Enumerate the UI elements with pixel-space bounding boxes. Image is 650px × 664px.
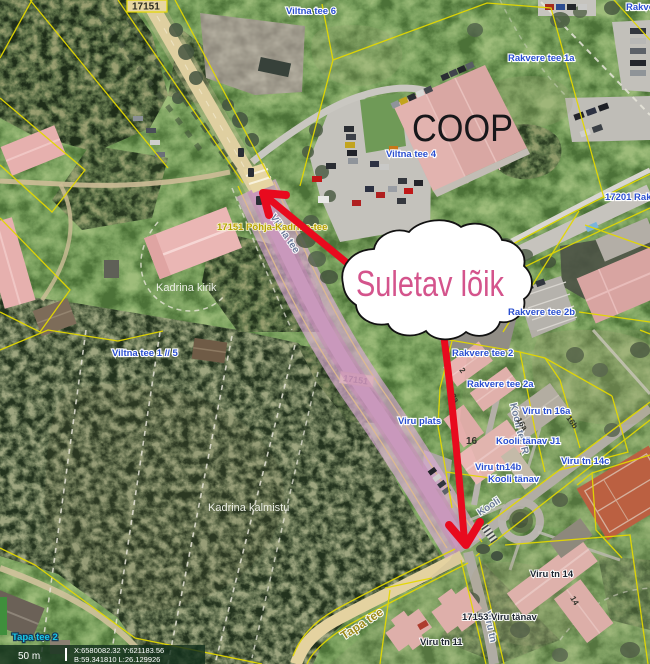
svg-text:17153 Viru tänav: 17153 Viru tänav: [462, 612, 538, 623]
svg-text:COOP: COOP: [412, 108, 513, 150]
svg-text:50 m: 50 m: [18, 651, 40, 662]
svg-text:Viru tn 14: Viru tn 14: [530, 569, 574, 580]
svg-text:Viru tn14b: Viru tn14b: [475, 462, 521, 473]
svg-text:X:6580082.32 Y:621183.56: X:6580082.32 Y:621183.56: [74, 646, 164, 655]
svg-text:Suletav lõik: Suletav lõik: [356, 263, 505, 304]
svg-text:Viltna tee 1 // 5: Viltna tee 1 // 5: [112, 348, 179, 359]
svg-text:17201 Rakv: 17201 Rakv: [605, 192, 650, 203]
svg-text:Kooli tänav J1: Kooli tänav J1: [496, 436, 561, 447]
svg-text:17151: 17151: [132, 2, 160, 13]
svg-text:Viltna tee 6: Viltna tee 6: [286, 6, 336, 17]
svg-text:Rakvere tee 2b: Rakvere tee 2b: [508, 307, 575, 318]
svg-text:Kooli tänav: Kooli tänav: [488, 474, 540, 485]
svg-text:Rakvere tee 1a: Rakvere tee 1a: [508, 53, 575, 64]
svg-text:Rakvere tee 2: Rakvere tee 2: [452, 348, 513, 359]
svg-text:Kadrina kirik: Kadrina kirik: [156, 282, 217, 294]
svg-text:Viru tn 11: Viru tn 11: [420, 637, 463, 648]
svg-text:Rakver: Rakver: [626, 2, 650, 13]
svg-text:Tapa tee 2: Tapa tee 2: [12, 632, 58, 643]
svg-text:Kadrina kalmistu: Kadrina kalmistu: [208, 502, 289, 514]
svg-text:Viltna tee 4: Viltna tee 4: [386, 149, 437, 160]
svg-text:16: 16: [466, 436, 478, 447]
svg-text:Viru tn 16a: Viru tn 16a: [522, 406, 571, 417]
svg-text:Rakvere tee 2a: Rakvere tee 2a: [467, 379, 534, 390]
svg-text:Viru plats: Viru plats: [398, 416, 441, 427]
svg-text:B:59.341810 L:26.129926: B:59.341810 L:26.129926: [74, 655, 160, 664]
svg-text:Viru tn 14c: Viru tn 14c: [561, 456, 609, 467]
